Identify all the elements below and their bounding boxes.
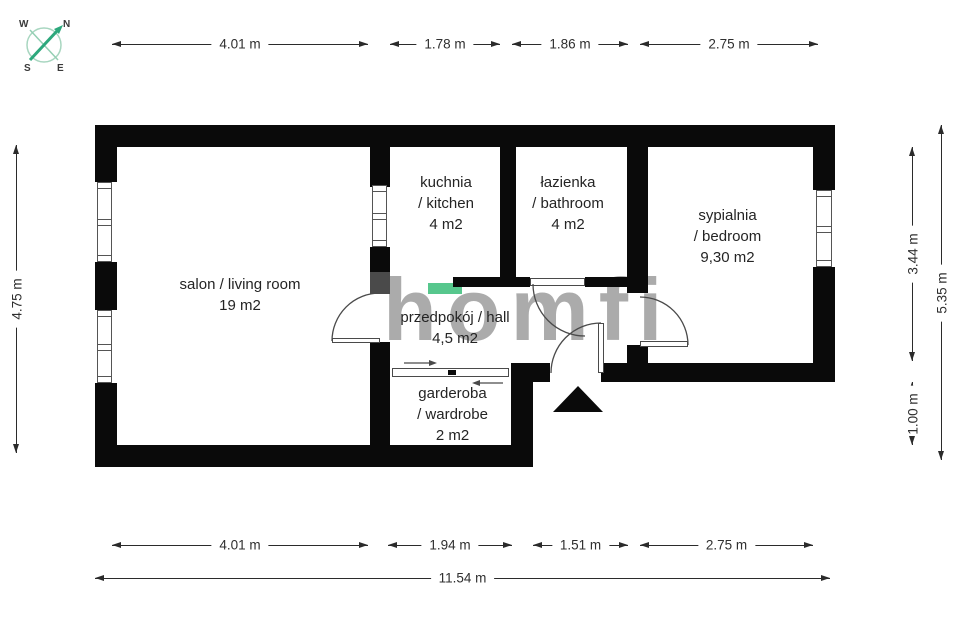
entrance-arrow: [553, 386, 603, 412]
wall-bottom-left: [95, 445, 533, 467]
wall-hall-bottom-a: [511, 363, 550, 382]
wall-kitchen-bottom: [453, 277, 530, 287]
compass-rose: W N S E: [10, 8, 82, 80]
room-label-wardrobe: garderoba / wardrobe 2 m2: [390, 383, 515, 446]
room-wardrobe-name-en: / wardrobe: [390, 404, 515, 425]
window-salon-kitchen-internal: [372, 185, 387, 247]
window-salon-left-2: [97, 310, 112, 383]
sliding-door-center-tick: [448, 370, 456, 375]
wall-salon-duct: [370, 272, 390, 294]
room-salon-name: salon / living room: [120, 274, 360, 295]
floor-plan: W N S E homfi: [0, 0, 960, 621]
wall-top: [95, 125, 835, 147]
dim-right-2: 5.35 m: [941, 125, 942, 460]
wall-salon-divider-mid: [370, 247, 390, 273]
dim-bottom-1: 4.01 m: [112, 545, 368, 546]
dim-left-label: 4.75 m: [9, 270, 24, 327]
dim-top-3: 1.86 m: [512, 44, 628, 45]
dim-total-width: 11.54 m: [95, 578, 830, 579]
compass-label-n: N: [63, 19, 70, 30]
dim-left: 4.75 m: [16, 145, 17, 453]
dim-bottom-2-label: 1.94 m: [421, 538, 478, 553]
door-leaf-entrance: [598, 323, 604, 373]
room-salon-area: 19 m2: [120, 295, 360, 316]
dim-top-4: 2.75 m: [640, 44, 818, 45]
room-wardrobe-area: 2 m2: [390, 425, 515, 446]
room-bedroom-name-pl: sypialnia: [655, 205, 800, 226]
dim-bottom-1-label: 4.01 m: [211, 538, 268, 553]
wall-salon-divider-bottom: [370, 342, 390, 445]
room-label-bedroom: sypialnia / bedroom 9,30 m2: [655, 205, 800, 268]
dim-bottom-3-label: 1.51 m: [552, 538, 609, 553]
compass-label-s: S: [24, 63, 31, 74]
room-wardrobe-name-pl: garderoba: [390, 383, 515, 404]
dim-top-1: 4.01 m: [112, 44, 368, 45]
door-leaf-bathroom: [530, 278, 585, 286]
dim-bottom-4-label: 2.75 m: [698, 538, 755, 553]
wall-right-lower: [813, 267, 835, 382]
dim-right-3-label: 1.00 m: [905, 385, 920, 442]
window-bedroom-right: [816, 190, 832, 267]
room-label-hall: przedpokój / hall 4,5 m2: [370, 307, 540, 349]
dim-top-2: 1.78 m: [390, 44, 500, 45]
dim-total-width-label: 11.54 m: [431, 571, 495, 586]
dim-top-1-label: 4.01 m: [211, 37, 268, 52]
room-kitchen-name-pl: kuchnia: [386, 172, 506, 193]
window-salon-left-1: [97, 182, 112, 262]
sliding-arrow-right-head: [429, 360, 437, 366]
room-label-kitchen: kuchnia / kitchen 4 m2: [386, 172, 506, 235]
wall-left-upper: [95, 125, 117, 182]
room-bathroom-name-en: / bathroom: [503, 193, 633, 214]
room-bedroom-name-en: / bedroom: [655, 226, 800, 247]
room-bedroom-area: 9,30 m2: [655, 247, 800, 268]
wall-bedroom-divider-bottom: [627, 345, 648, 382]
door-leaf-bedroom: [640, 341, 688, 347]
wall-bathroom-bottom: [585, 277, 628, 287]
room-label-bathroom: łazienka / bathroom 4 m2: [503, 172, 633, 235]
dim-right-1-label: 3.44 m: [905, 225, 920, 282]
dim-top-2-label: 1.78 m: [416, 37, 473, 52]
dim-right-1: 3.44 m: [912, 147, 913, 361]
dim-bottom-3: 1.51 m: [533, 545, 628, 546]
room-kitchen-area: 4 m2: [386, 214, 506, 235]
compass-label-w: W: [19, 19, 29, 30]
dim-bottom-2: 1.94 m: [388, 545, 512, 546]
compass-label-e: E: [57, 63, 64, 74]
dim-right-2-label: 5.35 m: [934, 264, 949, 321]
dim-right-3: 1.00 m: [912, 382, 913, 445]
room-hall-area: 4,5 m2: [370, 328, 540, 349]
room-hall-name: przedpokój / hall: [370, 307, 540, 328]
room-kitchen-name-en: / kitchen: [386, 193, 506, 214]
dim-top-3-label: 1.86 m: [541, 37, 598, 52]
room-bathroom-name-pl: łazienka: [503, 172, 633, 193]
room-bathroom-area: 4 m2: [503, 214, 633, 235]
wall-right-upper: [813, 125, 835, 190]
dim-bottom-4: 2.75 m: [640, 545, 813, 546]
room-label-salon: salon / living room 19 m2: [120, 274, 360, 316]
dim-top-4-label: 2.75 m: [700, 37, 757, 52]
wall-left-middle: [95, 262, 117, 310]
